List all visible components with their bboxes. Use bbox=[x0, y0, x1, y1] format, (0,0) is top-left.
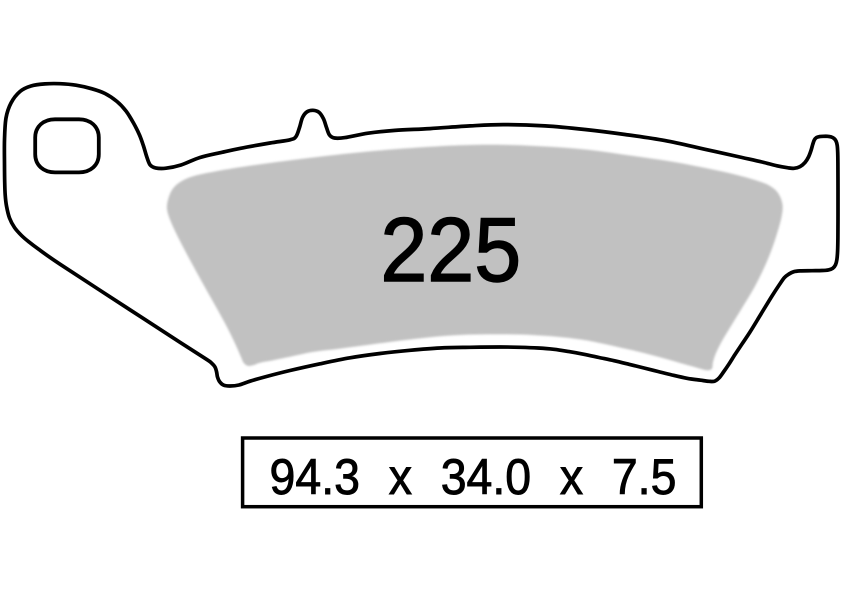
svg-text:225: 225 bbox=[380, 199, 521, 300]
svg-text:94.3 x 34.0 x 7.5: 94.3 x 34.0 x 7.5 bbox=[270, 449, 677, 505]
